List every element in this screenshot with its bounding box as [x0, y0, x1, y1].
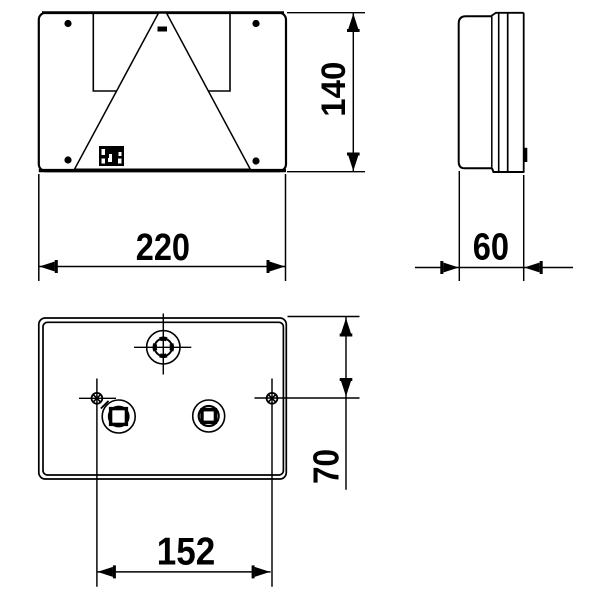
svg-text:140: 140: [315, 62, 353, 117]
svg-text:220: 220: [136, 227, 190, 269]
svg-text:70: 70: [305, 449, 346, 484]
svg-text:60: 60: [473, 227, 509, 269]
svg-text:152: 152: [157, 530, 216, 573]
